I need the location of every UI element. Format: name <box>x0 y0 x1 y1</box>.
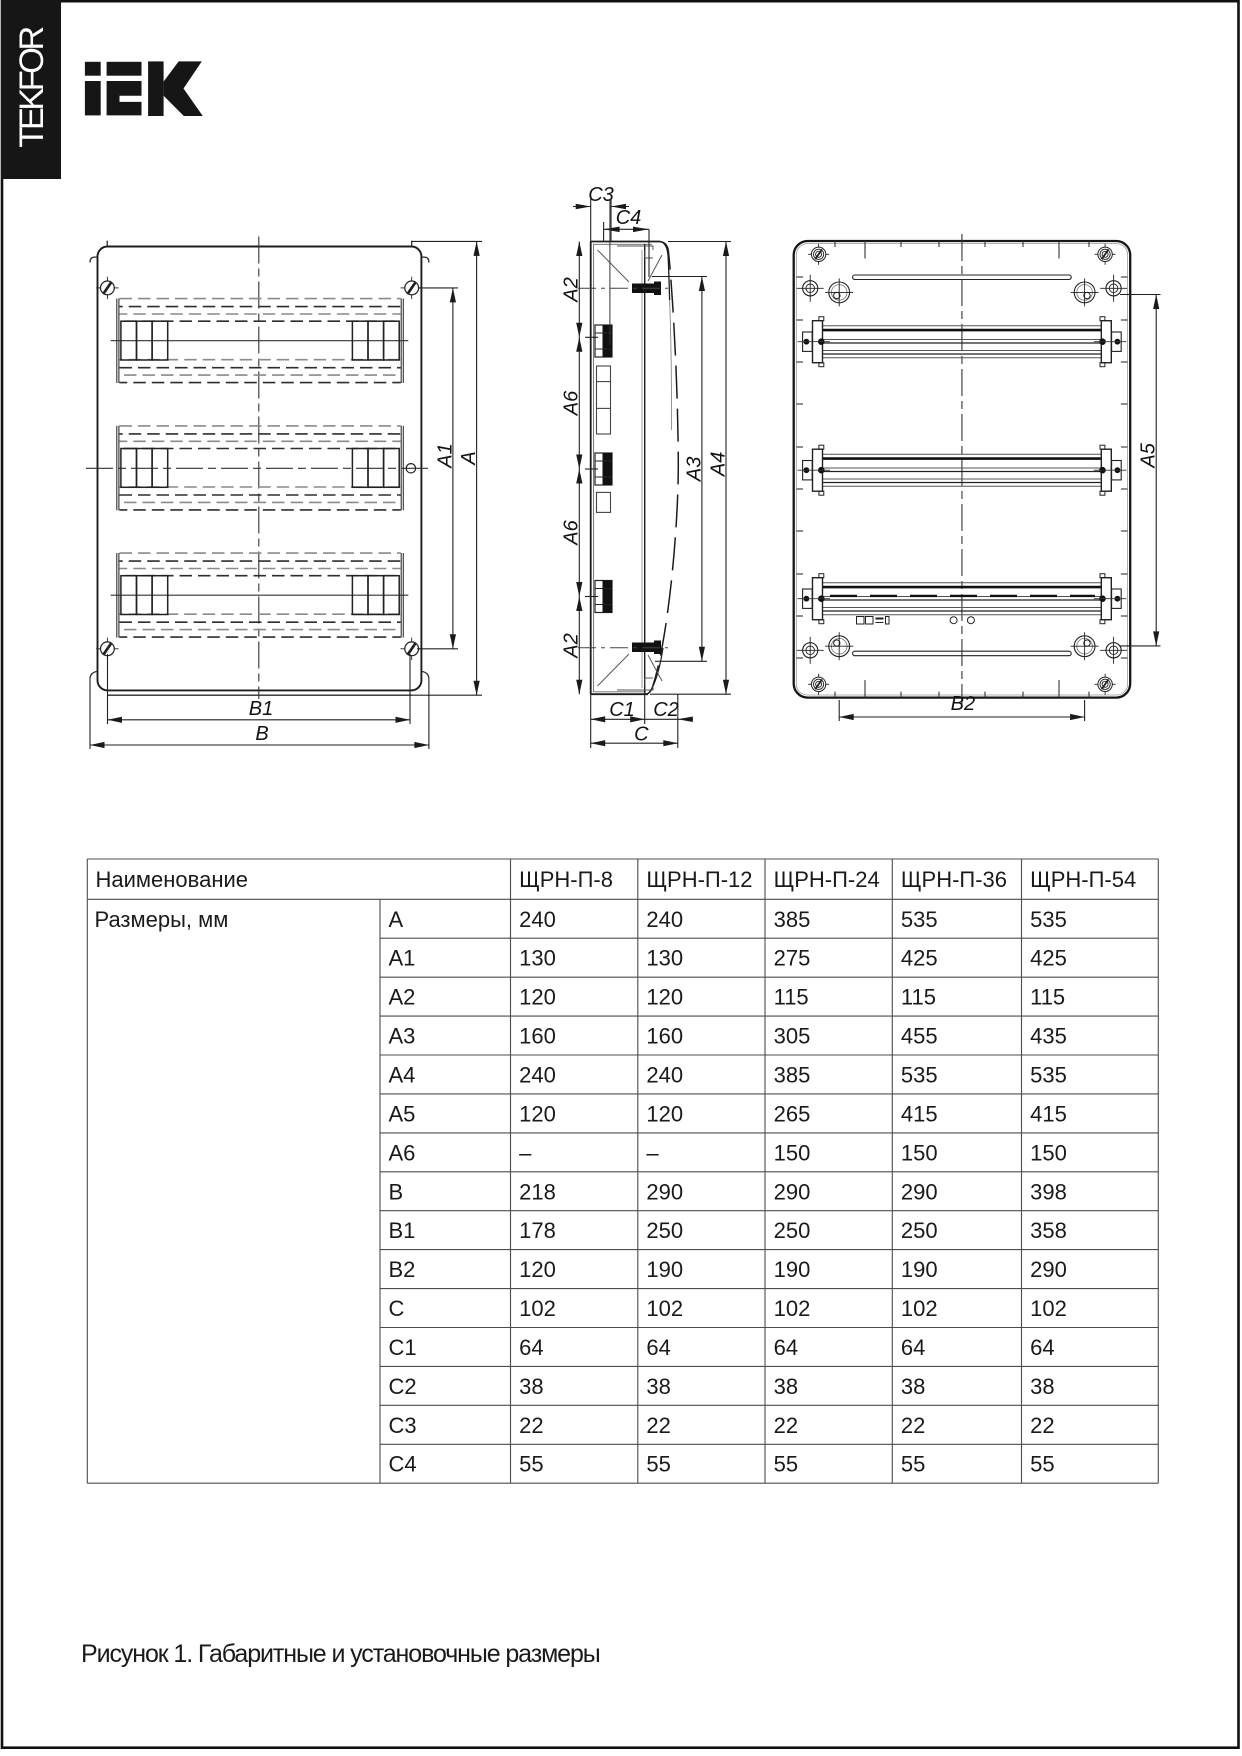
svg-text:55: 55 <box>901 1452 925 1477</box>
svg-text:240: 240 <box>519 1062 556 1087</box>
svg-text:150: 150 <box>1030 1140 1067 1165</box>
svg-text:B: B <box>255 723 268 745</box>
svg-text:C3: C3 <box>389 1413 417 1438</box>
svg-text:150: 150 <box>901 1140 938 1165</box>
svg-text:38: 38 <box>901 1374 925 1399</box>
svg-text:102: 102 <box>1030 1296 1067 1321</box>
svg-text:250: 250 <box>901 1218 938 1243</box>
svg-text:A5: A5 <box>1138 442 1160 468</box>
svg-text:55: 55 <box>774 1452 798 1477</box>
svg-text:425: 425 <box>901 946 938 971</box>
svg-text:535: 535 <box>901 1062 938 1087</box>
svg-text:A6: A6 <box>389 1140 416 1165</box>
svg-text:115: 115 <box>901 985 936 1010</box>
svg-text:A4: A4 <box>389 1062 416 1087</box>
svg-text:290: 290 <box>774 1179 811 1204</box>
svg-text:64: 64 <box>646 1335 670 1360</box>
svg-text:305: 305 <box>774 1024 811 1049</box>
svg-text:A5: A5 <box>389 1101 416 1126</box>
svg-text:455: 455 <box>901 1024 938 1049</box>
svg-text:ЩРН-П-24: ЩРН-П-24 <box>774 867 880 892</box>
svg-text:C4: C4 <box>616 207 642 229</box>
svg-text:38: 38 <box>774 1374 798 1399</box>
svg-text:130: 130 <box>646 946 683 971</box>
svg-text:C2: C2 <box>653 699 679 721</box>
svg-text:358: 358 <box>1030 1218 1067 1243</box>
svg-text:22: 22 <box>774 1413 798 1438</box>
svg-text:55: 55 <box>519 1452 543 1477</box>
svg-text:ЩРН-П-54: ЩРН-П-54 <box>1030 867 1136 892</box>
svg-text:435: 435 <box>1030 1024 1067 1049</box>
svg-text:B: B <box>389 1179 404 1204</box>
svg-text:265: 265 <box>774 1101 811 1126</box>
svg-text:425: 425 <box>1030 946 1067 971</box>
svg-text:64: 64 <box>519 1335 543 1360</box>
svg-text:C: C <box>634 724 649 746</box>
svg-text:A3: A3 <box>389 1024 416 1049</box>
svg-text:Рисунок 1. Габаритные и устано: Рисунок 1. Габаритные и установочные раз… <box>81 1640 600 1668</box>
svg-text:38: 38 <box>1030 1374 1054 1399</box>
svg-text:C1: C1 <box>609 699 635 721</box>
svg-text:250: 250 <box>774 1218 811 1243</box>
svg-text:115: 115 <box>774 985 809 1010</box>
svg-text:ЩРН-П-36: ЩРН-П-36 <box>901 867 1007 892</box>
svg-text:218: 218 <box>519 1179 556 1204</box>
svg-text:B2: B2 <box>389 1257 416 1282</box>
svg-text:A1: A1 <box>434 443 456 468</box>
svg-text:A6: A6 <box>561 519 583 545</box>
svg-text:120: 120 <box>519 1101 556 1126</box>
svg-text:Наименование: Наименование <box>96 867 249 892</box>
svg-text:398: 398 <box>1030 1179 1067 1204</box>
svg-text:385: 385 <box>774 1062 811 1087</box>
svg-text:A2: A2 <box>561 277 583 302</box>
svg-text:102: 102 <box>519 1296 556 1321</box>
svg-text:240: 240 <box>646 907 683 932</box>
svg-text:A: A <box>389 907 404 932</box>
svg-text:160: 160 <box>519 1024 556 1049</box>
svg-text:22: 22 <box>646 1413 670 1438</box>
svg-text:38: 38 <box>519 1374 543 1399</box>
svg-text:A2: A2 <box>389 985 416 1010</box>
svg-text:55: 55 <box>646 1452 670 1477</box>
svg-text:535: 535 <box>1030 907 1067 932</box>
svg-text:190: 190 <box>774 1257 811 1282</box>
svg-text:290: 290 <box>646 1179 683 1204</box>
svg-text:A1: A1 <box>389 946 416 971</box>
svg-text:190: 190 <box>646 1257 683 1282</box>
svg-text:102: 102 <box>901 1296 938 1321</box>
svg-text:120: 120 <box>646 985 683 1010</box>
svg-text:190: 190 <box>901 1257 938 1282</box>
svg-text:115: 115 <box>1030 985 1065 1010</box>
svg-text:22: 22 <box>1030 1413 1054 1438</box>
svg-text:64: 64 <box>1030 1335 1054 1360</box>
svg-text:55: 55 <box>1030 1452 1054 1477</box>
svg-text:240: 240 <box>646 1062 683 1087</box>
svg-text:ЩРН-П-8: ЩРН-П-8 <box>519 867 613 892</box>
svg-text:535: 535 <box>1030 1062 1067 1087</box>
svg-text:22: 22 <box>519 1413 543 1438</box>
svg-text:290: 290 <box>901 1179 938 1204</box>
svg-text:102: 102 <box>774 1296 811 1321</box>
svg-text:102: 102 <box>646 1296 683 1321</box>
svg-text:C1: C1 <box>389 1335 417 1360</box>
svg-text:A3: A3 <box>683 457 705 482</box>
svg-text:160: 160 <box>646 1024 683 1049</box>
svg-text:–: – <box>519 1140 532 1165</box>
svg-text:A6: A6 <box>561 390 583 416</box>
svg-text:120: 120 <box>646 1101 683 1126</box>
svg-text:120: 120 <box>519 985 556 1010</box>
svg-text:150: 150 <box>774 1140 811 1165</box>
svg-text:C4: C4 <box>389 1452 417 1477</box>
svg-text:B1: B1 <box>249 698 273 720</box>
svg-text:535: 535 <box>901 907 938 932</box>
svg-text:B2: B2 <box>951 693 975 715</box>
svg-text:TEKFOR: TEKFOR <box>13 27 51 148</box>
svg-text:64: 64 <box>901 1335 925 1360</box>
svg-text:A: A <box>458 451 480 465</box>
svg-text:120: 120 <box>519 1257 556 1282</box>
svg-text:415: 415 <box>901 1101 938 1126</box>
svg-text:290: 290 <box>1030 1257 1067 1282</box>
svg-text:A4: A4 <box>707 452 729 477</box>
svg-text:275: 275 <box>774 946 811 971</box>
svg-text:–: – <box>646 1140 659 1165</box>
svg-text:415: 415 <box>1030 1101 1067 1126</box>
svg-text:C2: C2 <box>389 1374 417 1399</box>
svg-text:250: 250 <box>646 1218 683 1243</box>
svg-text:22: 22 <box>901 1413 925 1438</box>
svg-text:240: 240 <box>519 907 556 932</box>
svg-text:B1: B1 <box>389 1218 416 1243</box>
svg-text:ЩРН-П-12: ЩРН-П-12 <box>646 867 752 892</box>
svg-text:C: C <box>389 1296 405 1321</box>
svg-text:Размеры, мм: Размеры, мм <box>95 907 229 932</box>
svg-text:64: 64 <box>774 1335 798 1360</box>
svg-text:38: 38 <box>646 1374 670 1399</box>
svg-text:A2: A2 <box>561 633 583 658</box>
svg-text:130: 130 <box>519 946 556 971</box>
svg-text:385: 385 <box>774 907 811 932</box>
svg-text:178: 178 <box>519 1218 556 1243</box>
